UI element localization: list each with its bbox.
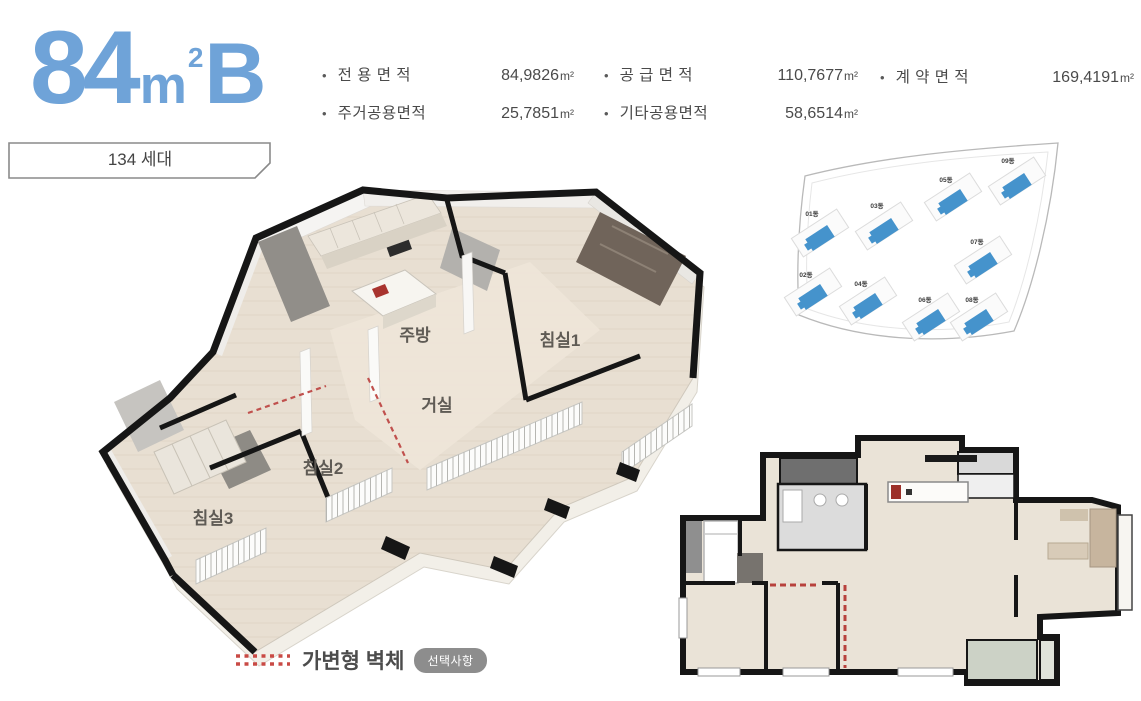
building-label: 09동 bbox=[1001, 157, 1014, 165]
households-count: 134 세대 bbox=[8, 142, 272, 178]
room-label-bedroom2: 침실2 bbox=[303, 458, 344, 478]
unit-size: 84 bbox=[30, 16, 136, 120]
room-label-kitchen: 주방 bbox=[399, 326, 431, 345]
spec-value: 110,7677 bbox=[777, 67, 843, 85]
unit-sqm: m2 bbox=[140, 59, 203, 112]
room-label-living: 거실 bbox=[421, 396, 452, 415]
building-label: 06동 bbox=[918, 296, 931, 304]
spec-unit: m² bbox=[1120, 71, 1134, 85]
unit-variant: B bbox=[204, 31, 266, 117]
spec-other-common-area: • 기타공용면적 58,6514 m² bbox=[604, 101, 858, 123]
floor-plan-2d bbox=[679, 438, 1132, 683]
spec-label: 공 급 면 적 bbox=[620, 63, 693, 85]
building-label: 05동 bbox=[939, 176, 952, 184]
spec-unit: m² bbox=[560, 69, 574, 83]
spec-unit: m² bbox=[560, 107, 574, 121]
spec-label: 계 약 면 적 bbox=[896, 65, 969, 87]
building-label: 02동 bbox=[799, 271, 812, 279]
building-label: 07동 bbox=[970, 238, 983, 246]
spec-label: 기타공용면적 bbox=[620, 101, 709, 123]
bullet: • bbox=[322, 68, 327, 83]
closet-2d bbox=[780, 458, 857, 484]
brochure-page: 01동 02동 03동 04동 05동 06동 07동 08동 09동 bbox=[0, 0, 1141, 701]
building-label: 04동 bbox=[854, 280, 867, 288]
spec-value: 84,9826 bbox=[501, 67, 559, 85]
spec-value: 25,7851 bbox=[501, 105, 559, 123]
bed-2d bbox=[704, 521, 738, 583]
building-label: 03동 bbox=[870, 202, 883, 210]
spec-value: 169,4191 bbox=[1052, 69, 1119, 87]
unit-sup: 2 bbox=[188, 42, 204, 73]
spec-supply-area: • 공 급 면 적 110,7677 m² bbox=[604, 63, 858, 85]
spec-contract-area: • 계 약 면 적 169,4191 m² bbox=[880, 65, 1134, 87]
bullet: • bbox=[604, 68, 609, 83]
room-label-bedroom3: 침실3 bbox=[193, 508, 234, 528]
legend: 가변형 벽체 선택사항 bbox=[234, 645, 487, 675]
spec-label: 주거공용면적 bbox=[338, 101, 427, 123]
spec-label: 전 용 면 적 bbox=[338, 63, 411, 85]
spec-residential-common-area: • 주거공용면적 25,7851 m² bbox=[322, 101, 574, 123]
spec-unit: m² bbox=[844, 107, 858, 121]
spec-value: 58,6514 bbox=[785, 105, 843, 123]
building-label: 08동 bbox=[965, 296, 978, 304]
spec-exclusive-area: • 전 용 면 적 84,9826 m² bbox=[322, 63, 574, 85]
bullet: • bbox=[604, 106, 609, 121]
floor-plan-3d: 주방 침실1 거실 침실2 침실3 bbox=[103, 190, 704, 666]
site-plan: 01동 02동 03동 04동 05동 06동 07동 08동 09동 bbox=[784, 143, 1058, 341]
unit-type-title: 84m2B bbox=[30, 16, 267, 120]
optional-badge: 선택사항 bbox=[414, 648, 486, 673]
bullet: • bbox=[322, 106, 327, 121]
bullet: • bbox=[880, 70, 885, 85]
legend-label: 가변형 벽체 bbox=[302, 645, 404, 675]
households-box: 134 세대 bbox=[8, 142, 272, 180]
building-label: 01동 bbox=[805, 210, 818, 218]
spec-unit: m² bbox=[844, 69, 858, 83]
variable-wall-legend-icon bbox=[234, 651, 292, 669]
room-label-bedroom1: 침실1 bbox=[540, 330, 581, 350]
